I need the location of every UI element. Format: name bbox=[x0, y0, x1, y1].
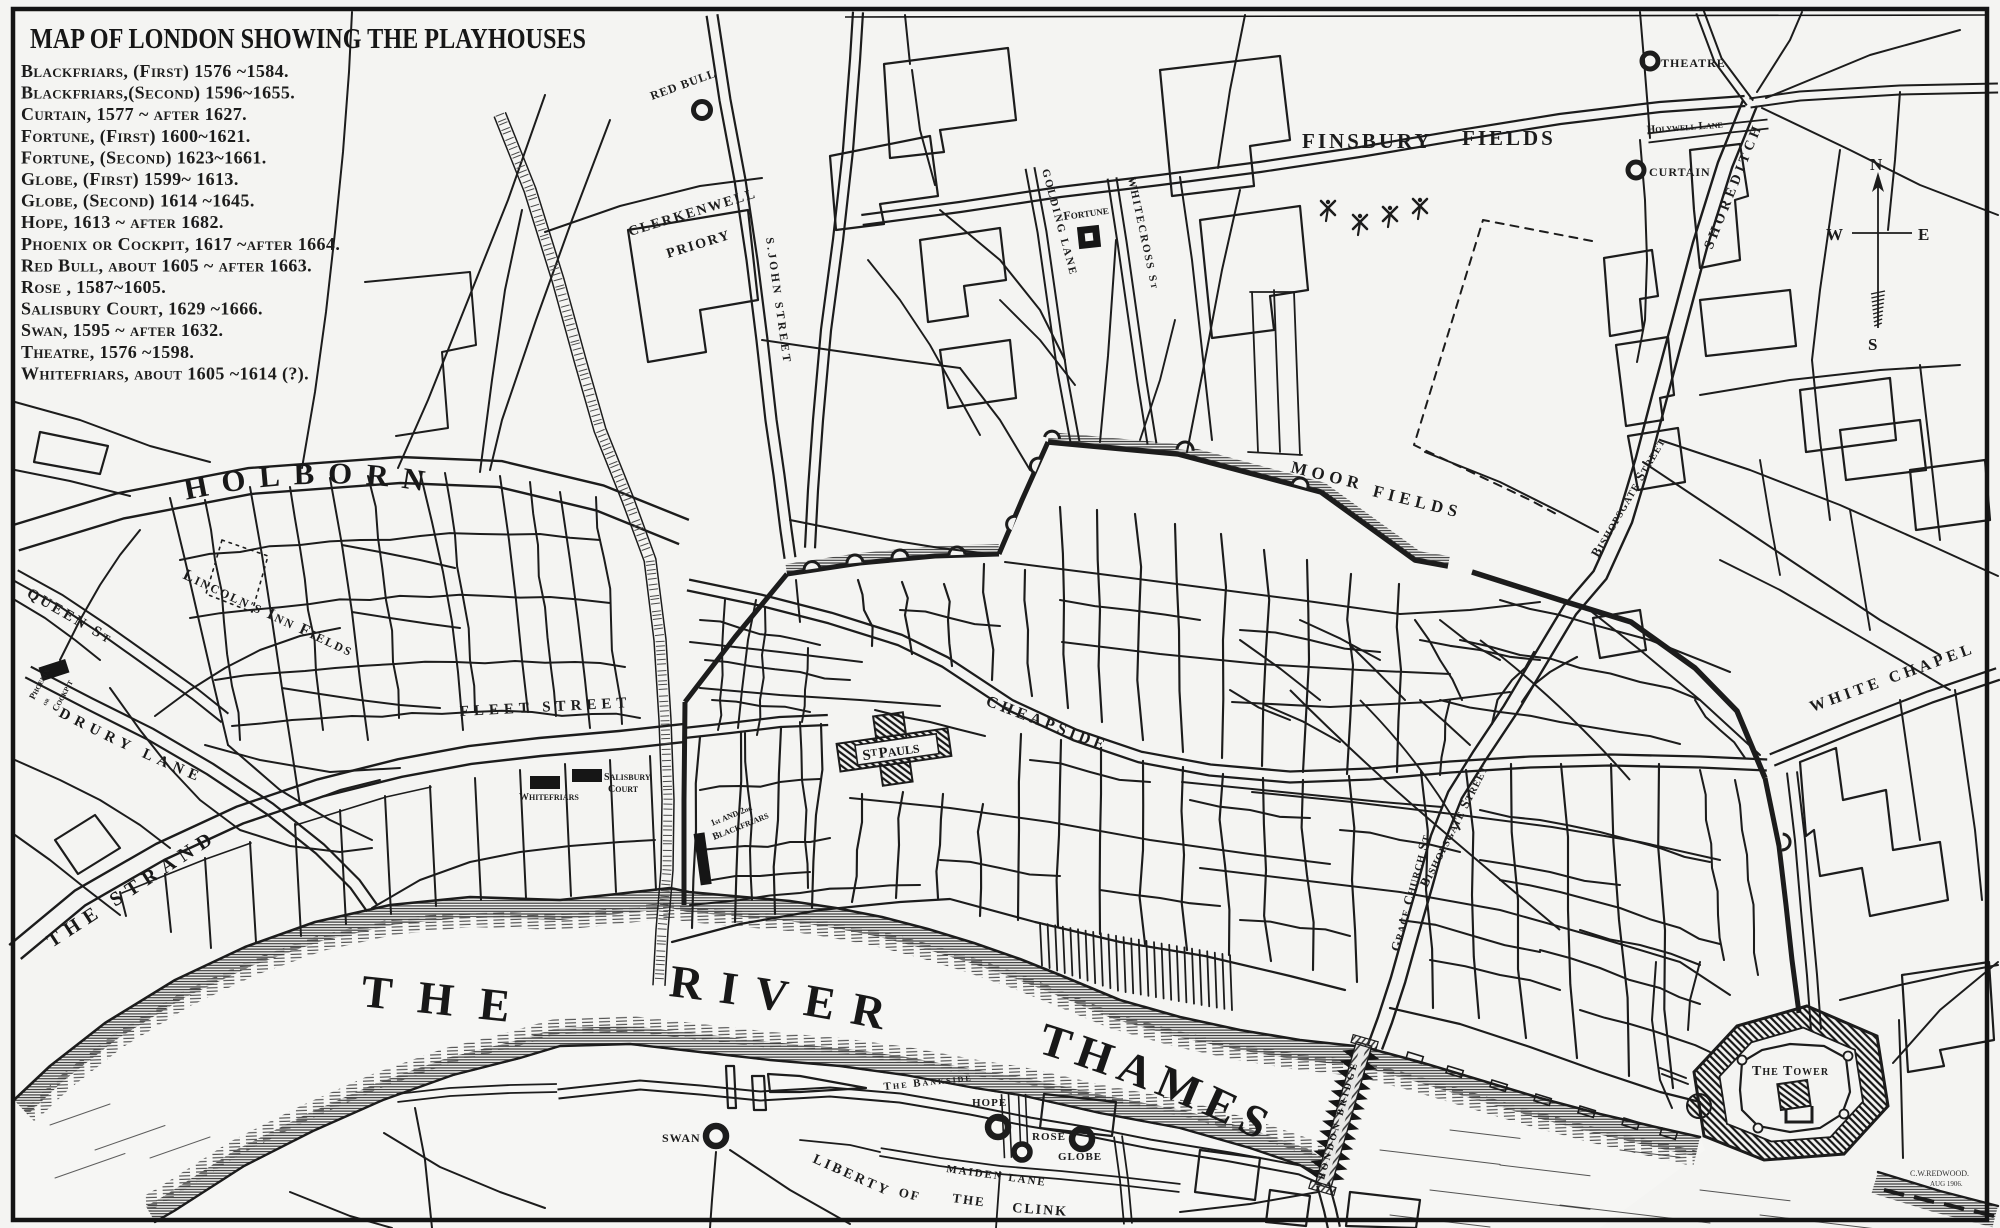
svg-text:Fortune, (Second) 1623~1661.: Fortune, (Second) 1623~1661. bbox=[21, 147, 267, 168]
svg-text:Rose , 1587~1605.: Rose , 1587~1605. bbox=[21, 277, 166, 297]
svg-text:Blackfriars,(Second) 1596~1655: Blackfriars,(Second) 1596~1655. bbox=[21, 83, 295, 104]
svg-text:FIELDS: FIELDS bbox=[1462, 126, 1556, 150]
svg-text:N: N bbox=[1870, 155, 1883, 174]
svg-text:Salisbury Court, 1629 ~1666.: Salisbury Court, 1629 ~1666. bbox=[21, 299, 263, 319]
svg-text:THE TOWER: THE TOWER bbox=[1752, 1064, 1829, 1079]
svg-text:C.W.REDWOOD.: C.W.REDWOOD. bbox=[1910, 1169, 1969, 1178]
svg-text:Globe, (Second) 1614 ~1645.: Globe, (Second) 1614 ~1645. bbox=[21, 191, 255, 212]
svg-text:Whitefriars, about 1605 ~1614: Whitefriars, about 1605 ~1614 (?). bbox=[21, 363, 309, 384]
svg-text:Blackfriars, (First) 1576 ~158: Blackfriars, (First) 1576 ~1584. bbox=[21, 61, 289, 82]
svg-text:E: E bbox=[1918, 225, 1929, 244]
svg-text:W: W bbox=[1826, 225, 1843, 244]
svg-text:WHITEFRIARS: WHITEFRIARS bbox=[519, 792, 579, 803]
svg-text:Swan, 1595 ~ after 1632.: Swan, 1595 ~ after 1632. bbox=[21, 320, 223, 340]
svg-text:FINSBURY: FINSBURY bbox=[1302, 129, 1433, 153]
svg-text:SWAN: SWAN bbox=[662, 1131, 701, 1145]
svg-text:CURTAIN: CURTAIN bbox=[1649, 165, 1711, 179]
svg-text:AUG 1906.: AUG 1906. bbox=[1930, 1180, 1963, 1188]
svg-text:Theatre, 1576 ~1598.: Theatre, 1576 ~1598. bbox=[21, 342, 194, 362]
svg-text:Curtain, 1577 ~ after 1627.: Curtain, 1577 ~ after 1627. bbox=[21, 104, 247, 124]
svg-text:Fortune, (First) 1600~1621.: Fortune, (First) 1600~1621. bbox=[21, 126, 251, 147]
svg-text:GLOBE: GLOBE bbox=[1058, 1151, 1102, 1163]
svg-text:THEATRE: THEATRE bbox=[1661, 56, 1726, 70]
svg-text:COURT: COURT bbox=[608, 784, 639, 795]
svg-text:MAP OF LONDON SHOWING THE PLAY: MAP OF LONDON SHOWING THE PLAYHOUSES bbox=[30, 24, 586, 55]
svg-text:S: S bbox=[1868, 335, 1877, 354]
svg-text:ROSE: ROSE bbox=[1032, 1131, 1066, 1143]
svg-text:SALISBURY: SALISBURY bbox=[604, 772, 651, 783]
svg-text:Red Bull, about 1605 ~ after: Red Bull, about 1605 ~ after 1663. bbox=[21, 255, 312, 275]
svg-text:Hope, 1613 ~ after 1682.: Hope, 1613 ~ after 1682. bbox=[21, 212, 224, 232]
svg-text:Globe, (First) 1599~ 1613.: Globe, (First) 1599~ 1613. bbox=[21, 169, 239, 190]
svg-text:Phoenix or Cockpit, 1617 ~afte: Phoenix or Cockpit, 1617 ~after 1664. bbox=[21, 234, 340, 254]
